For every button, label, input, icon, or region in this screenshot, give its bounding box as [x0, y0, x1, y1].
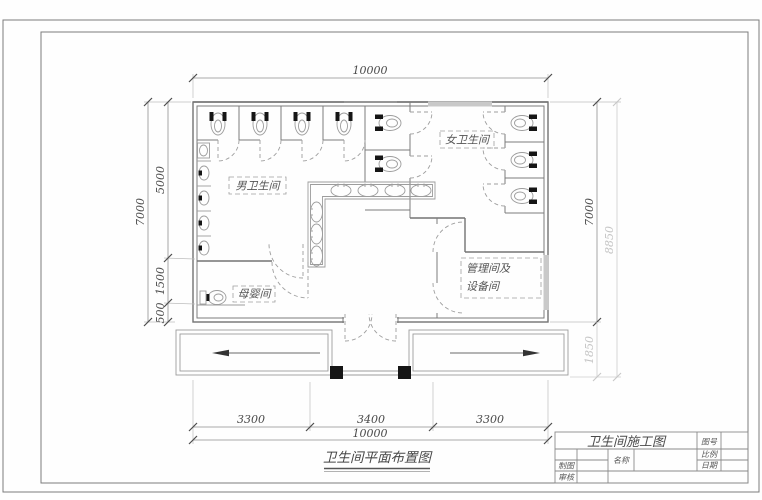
dim-right-overall: 8850	[603, 226, 616, 254]
toilet-icon-nursing	[200, 291, 226, 305]
label-womens-room: 女卫生间	[445, 134, 491, 147]
dim-top-total: 10000	[353, 64, 388, 77]
dim-bottom-total: 10000	[353, 427, 388, 440]
titleblock-name-label: 名称	[613, 456, 631, 465]
titleblock-drafter-label: 制图	[558, 462, 575, 471]
window-top	[428, 102, 492, 107]
toilet-icons-right	[511, 115, 537, 205]
titleblock-reviewer-label: 审核	[558, 473, 576, 482]
titleblock-drawing-no-label: 图号	[701, 438, 718, 447]
floor-plan-canvas: 10000 7000 5000 1500 500 7000 1850 8850	[0, 0, 762, 500]
plan-title-group: 卫生间平面布置图	[323, 450, 433, 472]
drawing-frame	[41, 32, 748, 483]
womens-right-stall-doors	[483, 112, 505, 206]
urinal-icons	[199, 166, 210, 255]
dimension-left: 7000 5000 1500 500	[134, 98, 195, 326]
urinals	[197, 143, 211, 261]
dim-right-total: 7000	[583, 198, 596, 226]
title-block: 卫生间施工图 图号 比例 日期 名称 制图 审核	[555, 432, 748, 483]
right-platform	[409, 330, 568, 375]
titleblock-scale-label: 比例	[701, 450, 719, 459]
label-nursing-room: 母婴间	[238, 288, 273, 301]
left-arrow-icon	[212, 350, 320, 356]
dim-bottom-3300-right: 3300	[476, 413, 504, 426]
dim-right-porch: 1850	[583, 336, 596, 364]
dimension-right: 7000 1850 8850	[550, 98, 621, 381]
left-platform	[176, 330, 332, 375]
cad-sheet: 10000 7000 5000 1500 500 7000 1850 8850	[0, 0, 762, 500]
right-arrow-icon	[450, 350, 540, 356]
wash-counter	[308, 182, 435, 267]
dim-bottom-3300-left: 3300	[237, 413, 265, 426]
dimension-top: 10000	[189, 64, 552, 98]
label-management-room-line2: 设备间	[466, 280, 501, 293]
dim-left-total: 7000	[134, 198, 147, 226]
dim-left-1500: 1500	[154, 267, 167, 295]
label-management-room-line1: 管理间及	[466, 262, 511, 275]
room-labels: 男卫生间 女卫生间 母婴间 管理间及 设备间	[229, 131, 541, 302]
dimension-bottom: 3300 3400 3300 10000	[189, 380, 552, 444]
window-right	[544, 255, 549, 310]
label-mens-room: 男卫生间	[236, 180, 282, 193]
titleblock-date-label: 日期	[701, 461, 718, 470]
mens-stall-doors	[218, 140, 365, 161]
entrance-columns	[330, 366, 411, 379]
womens-left-stall-doors	[410, 112, 432, 178]
mens-toilet-stalls	[197, 106, 365, 182]
titleblock-project-title: 卫生间施工图	[587, 435, 667, 450]
dim-left-500: 500	[154, 303, 167, 324]
sink-icons	[310, 184, 431, 267]
dim-bottom-3400: 3400	[357, 413, 385, 426]
womens-toilet-stalls	[365, 102, 544, 218]
plan-title: 卫生间平面布置图	[323, 450, 433, 466]
dim-left-5000: 5000	[154, 166, 167, 194]
